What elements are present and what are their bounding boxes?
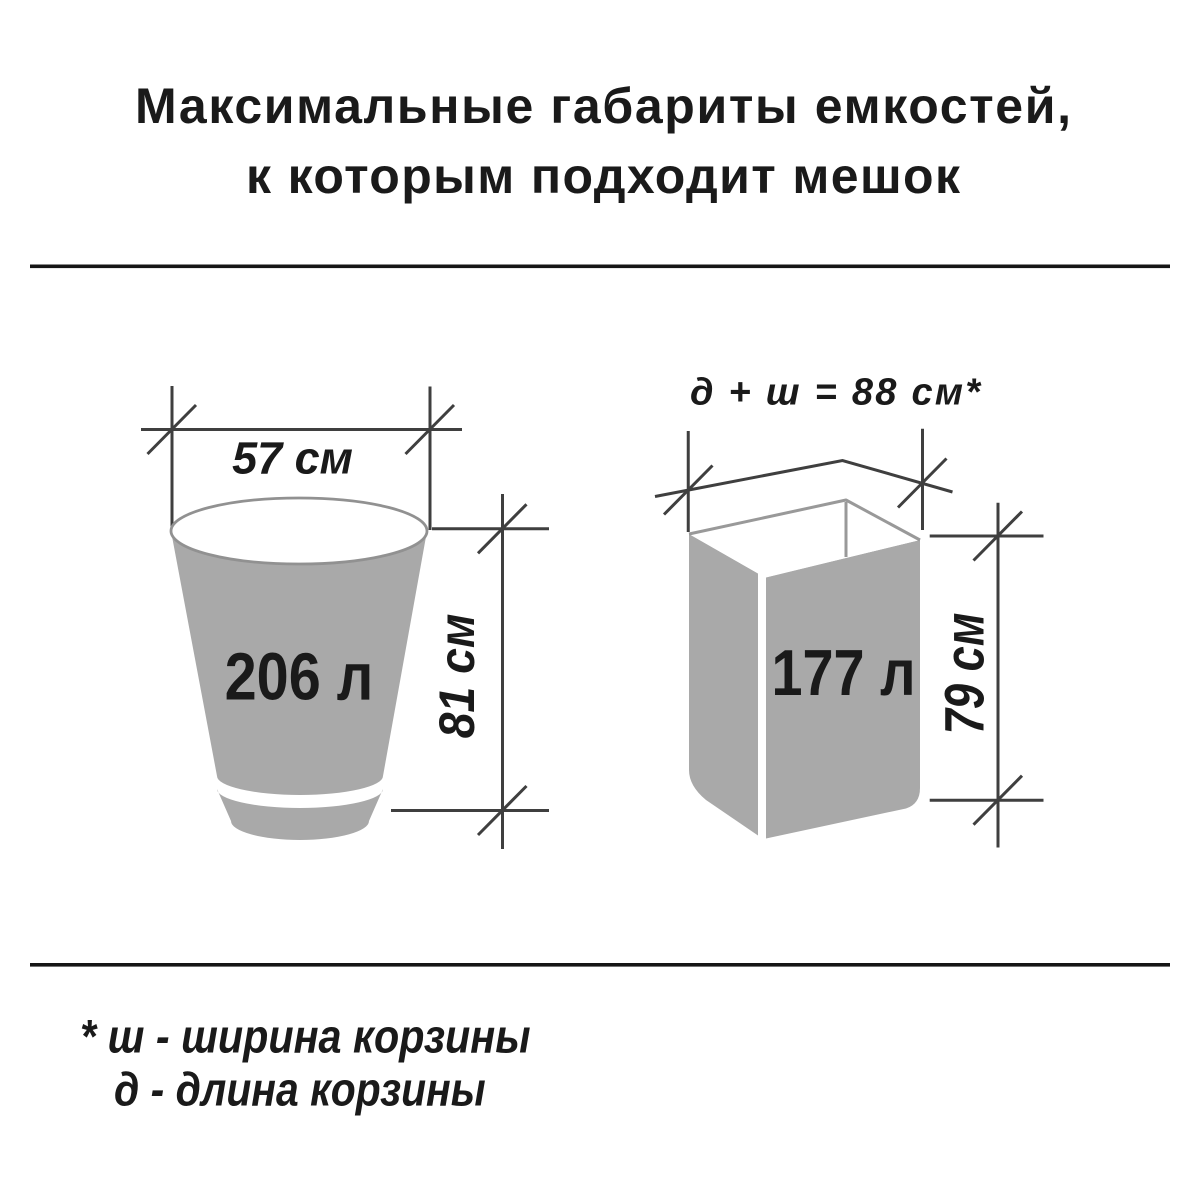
svg-text:Максимальные габариты емкостей: Максимальные габариты емкостей, xyxy=(135,78,1071,134)
svg-text:177 л: 177 л xyxy=(771,636,915,709)
svg-text:79 см: 79 см xyxy=(933,613,996,735)
svg-text:д - длина корзины: д - длина корзины xyxy=(114,1064,486,1116)
svg-text:206 л: 206 л xyxy=(225,639,374,714)
svg-text:57 см: 57 см xyxy=(232,433,353,484)
svg-text:81 см: 81 см xyxy=(429,614,485,739)
svg-text:к которым подходит мешок: к которым подходит мешок xyxy=(246,148,961,204)
svg-text:д + ш = 88 см*: д + ш = 88 см* xyxy=(690,372,982,414)
svg-text:* ш - ширина корзины: * ш - ширина корзины xyxy=(80,1011,531,1063)
